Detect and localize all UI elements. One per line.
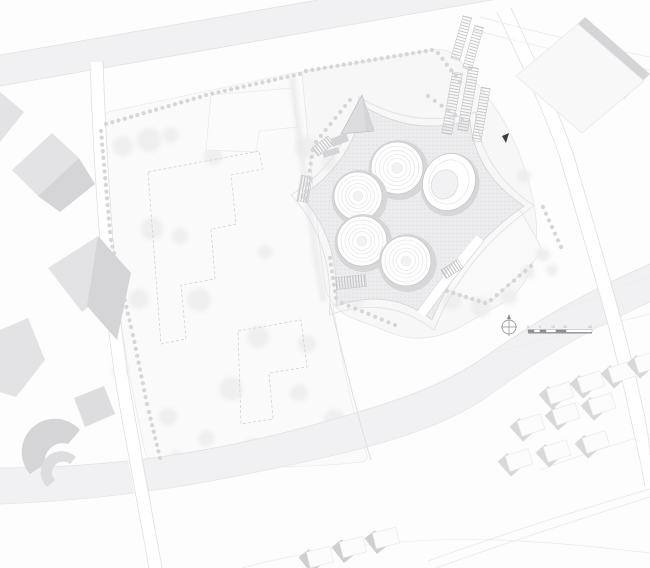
tree-dot xyxy=(254,82,258,86)
tree-dot xyxy=(398,53,402,57)
tree-dot xyxy=(108,230,112,234)
scale-bar-segments xyxy=(528,330,592,333)
tree-dot xyxy=(380,56,384,60)
tree-dot xyxy=(405,52,409,56)
scale-bar-segment xyxy=(556,330,566,333)
tree-dot xyxy=(446,108,450,112)
tree-dot xyxy=(483,301,487,305)
tree-dot xyxy=(477,299,481,303)
tree-canopy xyxy=(129,289,149,309)
tree-dot xyxy=(126,312,130,316)
tree-canopy xyxy=(187,288,211,312)
tree-dot xyxy=(144,395,148,399)
tree-dot xyxy=(158,456,162,460)
tree-dot xyxy=(445,289,449,293)
scale-tick: 10 xyxy=(551,325,555,329)
tree-canopy xyxy=(172,228,188,244)
tree-dot xyxy=(342,63,346,67)
tree-dot xyxy=(338,110,342,114)
tree-dot xyxy=(386,55,390,59)
tree-dot xyxy=(101,156,105,160)
tree-dot xyxy=(229,87,233,91)
tree-dot xyxy=(242,85,246,89)
tree-dot xyxy=(314,140,318,144)
tree-dot xyxy=(105,196,109,200)
tree-dot xyxy=(367,58,371,62)
tree-dot xyxy=(147,410,151,414)
scale-bar-baseline xyxy=(528,332,592,333)
tree-dot xyxy=(198,95,202,99)
tree-dot xyxy=(304,69,308,73)
tree-dot xyxy=(512,279,516,283)
tree-dot xyxy=(142,388,146,392)
tree-dot xyxy=(285,75,289,79)
tree-dot xyxy=(192,97,196,101)
tree-dot xyxy=(440,104,444,108)
tree-dot xyxy=(138,367,142,371)
tree-dot xyxy=(464,295,468,299)
tree-canopy xyxy=(290,384,308,402)
tree-dot xyxy=(106,203,110,207)
tree-canopy xyxy=(521,265,535,279)
scale-tick: 20 xyxy=(563,325,567,329)
tree-dot xyxy=(204,93,208,97)
tree-dot xyxy=(141,381,145,385)
tree-dot xyxy=(329,65,333,69)
tree-dot xyxy=(99,129,103,133)
tree-dot xyxy=(107,223,111,227)
tree-dot xyxy=(451,291,455,295)
tree-dot xyxy=(100,142,104,146)
tree-dot xyxy=(210,92,214,96)
tree-dot xyxy=(185,99,189,103)
tree-dot xyxy=(333,116,337,120)
scale-bar-segment xyxy=(534,330,540,333)
tree-canopy xyxy=(113,136,133,156)
tree-dot xyxy=(424,49,428,53)
tree-dot xyxy=(150,423,154,427)
tree-dot xyxy=(148,109,152,113)
tree-dot xyxy=(155,443,159,447)
tree-dot xyxy=(137,361,141,365)
tree-dot xyxy=(332,283,336,287)
tree-dot xyxy=(373,57,377,61)
tree-dot xyxy=(470,297,474,301)
tree-dot xyxy=(335,64,339,68)
tree-dot xyxy=(343,104,347,108)
tree-dot xyxy=(333,289,337,293)
tree-dot xyxy=(373,315,377,319)
tree-dot xyxy=(127,318,131,322)
round-tower xyxy=(379,234,437,292)
tree-dot xyxy=(324,128,328,132)
scale-bar-segment xyxy=(528,330,534,333)
tree-dot xyxy=(500,288,504,292)
tree-canopy xyxy=(198,430,214,446)
tree-dot xyxy=(340,301,344,305)
tree-dot xyxy=(393,323,397,327)
tree-dot xyxy=(334,296,338,300)
tree-dot xyxy=(102,163,106,167)
tree-dot xyxy=(123,117,127,121)
tree-canopy xyxy=(517,169,531,183)
tree-dot xyxy=(348,62,352,66)
tree-dot xyxy=(109,238,113,242)
tree-dot xyxy=(458,80,462,84)
tree-canopy xyxy=(159,408,177,426)
tree-dot xyxy=(135,354,139,358)
tree-dot xyxy=(134,347,138,351)
tree-dot xyxy=(430,48,434,52)
scale-bar-segment xyxy=(540,330,546,333)
tree-dot xyxy=(354,61,358,65)
tree-dot xyxy=(386,320,390,324)
tree-dot xyxy=(298,72,302,76)
tree-dot xyxy=(145,402,149,406)
tree-dot xyxy=(292,73,296,77)
tree-dot xyxy=(167,104,171,108)
tree-dot xyxy=(101,149,105,153)
tree-dot xyxy=(556,238,560,242)
tree-dot xyxy=(216,90,220,94)
tree-dot xyxy=(223,89,227,93)
tree-dot xyxy=(104,190,108,194)
scale-bar-segment xyxy=(546,330,556,333)
tree-dot xyxy=(380,317,384,321)
tree-dot xyxy=(156,449,160,453)
tree-dot xyxy=(449,68,453,72)
tree-dot xyxy=(267,79,271,83)
tree-dot xyxy=(360,309,364,313)
tree-dot xyxy=(319,134,323,138)
tree-dot xyxy=(153,436,157,440)
tree-dot xyxy=(131,333,135,337)
tree-dot xyxy=(454,74,458,78)
tree-dot xyxy=(323,66,327,70)
tree-dot xyxy=(317,67,321,71)
tree-dot xyxy=(149,417,153,421)
tree-dot xyxy=(547,218,551,222)
tree-dot xyxy=(124,305,128,309)
tree-dot xyxy=(139,374,143,378)
tree-dot xyxy=(104,122,108,126)
tree-dot xyxy=(541,205,545,209)
tree-dot xyxy=(107,216,111,220)
tree-dot xyxy=(154,108,158,112)
tree-dot xyxy=(460,118,464,122)
tree-dot xyxy=(129,115,133,119)
tree-dot xyxy=(303,196,307,200)
tree-dot xyxy=(458,293,462,297)
tree-dot xyxy=(329,263,333,267)
tree-dot xyxy=(329,122,333,126)
tree-dot xyxy=(553,232,557,236)
tree-dot xyxy=(331,276,335,280)
tree-dot xyxy=(308,169,312,173)
tree-canopy xyxy=(247,326,269,348)
tree-dot xyxy=(235,86,239,90)
tree-dot xyxy=(440,57,444,61)
tree-dot xyxy=(306,175,310,179)
tree-dot xyxy=(279,76,283,80)
tree-dot xyxy=(544,212,548,216)
tree-dot xyxy=(132,340,136,344)
tree-dot xyxy=(260,80,264,84)
tree-canopy xyxy=(546,264,558,276)
tree-dot xyxy=(328,256,332,260)
tree-dot xyxy=(110,245,114,249)
tree-dot xyxy=(135,113,139,117)
tree-dot xyxy=(129,325,133,329)
tree-dot xyxy=(106,210,110,214)
tree-dot xyxy=(100,136,104,140)
tree-dot xyxy=(179,100,183,104)
tree-dot xyxy=(489,298,493,302)
scale-tick: 0 xyxy=(527,325,529,329)
tree-canopy xyxy=(298,335,316,353)
scale-tick: 40 xyxy=(588,325,592,329)
tree-dot xyxy=(506,283,510,287)
tree-dot xyxy=(529,264,533,268)
tree-dot xyxy=(348,98,352,102)
tree-dot xyxy=(273,78,277,82)
tree-dot xyxy=(309,162,313,166)
tree-canopy xyxy=(258,245,272,259)
tree-dot xyxy=(160,106,164,110)
tree-dot xyxy=(311,148,315,152)
tree-canopy xyxy=(536,248,550,262)
tree-dot xyxy=(550,225,554,229)
tree-dot xyxy=(559,245,563,249)
tree-canopy xyxy=(137,128,161,152)
site-plan-drawing: 0 5 10 20 40 xyxy=(0,0,650,568)
tree-dot xyxy=(523,269,527,273)
tree-dot xyxy=(361,59,365,63)
tree-dot xyxy=(103,169,107,173)
tree-dot xyxy=(445,63,449,67)
tree-dot xyxy=(310,155,314,159)
tree-dot xyxy=(518,274,522,278)
tree-dot xyxy=(310,68,314,72)
tree-dot xyxy=(103,176,107,180)
tree-dot xyxy=(104,183,108,187)
tree-dot xyxy=(152,430,156,434)
tree-dot xyxy=(392,54,396,58)
tree-dot xyxy=(433,99,437,103)
tree-dot xyxy=(411,51,415,55)
tree-dot xyxy=(353,306,357,310)
tree-dot xyxy=(173,102,177,106)
scale-tick: 5 xyxy=(539,325,541,329)
tree-dot xyxy=(248,83,252,87)
tree-dot xyxy=(426,94,430,98)
scale-bar-segment xyxy=(566,330,592,333)
tree-dot xyxy=(453,113,457,117)
tree-dot xyxy=(304,189,308,193)
tree-dot xyxy=(366,312,370,316)
tree-canopy xyxy=(163,127,179,143)
tree-dot xyxy=(110,120,114,124)
tree-dot xyxy=(417,50,421,54)
tree-dot xyxy=(436,51,440,55)
tree-dot xyxy=(330,269,334,273)
tree-dot xyxy=(142,111,146,115)
tree-dot xyxy=(347,304,351,308)
tree-dot xyxy=(495,293,499,297)
tree-dot xyxy=(116,118,120,122)
tree-dot xyxy=(305,182,309,186)
